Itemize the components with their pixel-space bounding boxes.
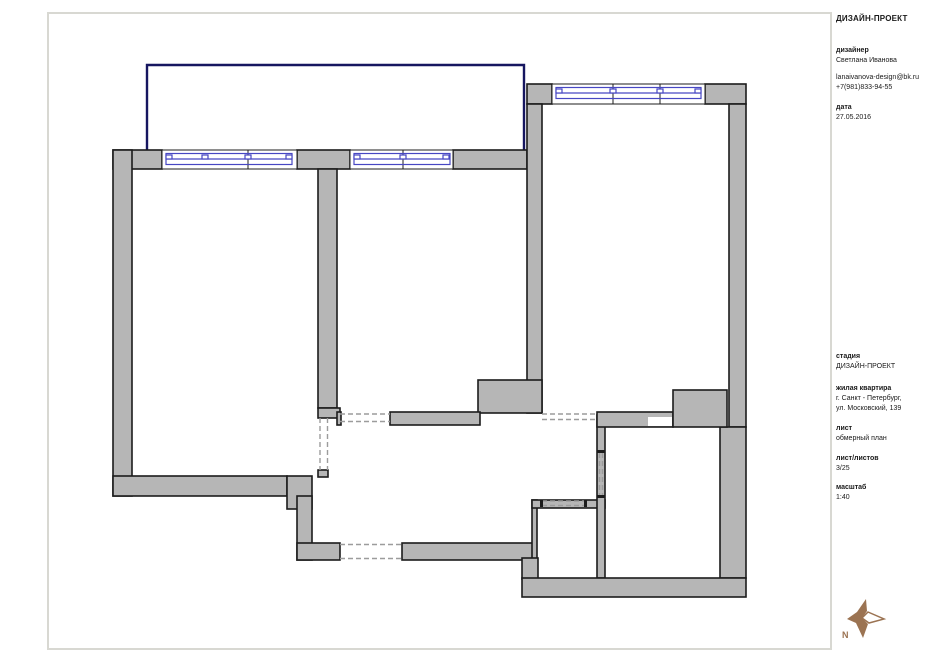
window-symbol	[202, 155, 208, 159]
compass: N	[833, 590, 893, 655]
wall-segment	[705, 84, 746, 104]
door-jambs	[540, 450, 605, 507]
scale-value: 1:40	[836, 494, 936, 503]
designer-name: Светлана Иванова	[836, 57, 936, 66]
window-symbol	[443, 155, 449, 159]
wall-segment	[113, 476, 287, 496]
door-jamb-tick	[540, 500, 543, 507]
door-openings	[320, 414, 603, 559]
wall-opening-gap	[648, 417, 672, 426]
wall-segment	[113, 150, 132, 496]
wall-segment	[522, 578, 746, 597]
wall-segment	[453, 150, 527, 169]
designer-label: дизайнер	[836, 47, 936, 56]
window-symbol	[286, 155, 292, 159]
door-opening-dashed	[340, 414, 390, 422]
sheet-name-value: обмерный план	[836, 435, 936, 444]
sheet-count-label: лист/листов	[836, 455, 936, 464]
wall-segment	[297, 150, 350, 169]
north-arrow-icon: N	[833, 590, 893, 650]
window-symbol	[166, 155, 172, 159]
object-label: жилая квартира	[836, 385, 936, 394]
window-symbol	[556, 89, 562, 93]
window-bands	[162, 84, 705, 169]
compass-north-label: N	[842, 630, 849, 640]
wall-segment	[402, 543, 533, 560]
door-jamb-tick	[597, 495, 605, 498]
stage-value: ДИЗАЙН-ПРОЕКТ	[836, 363, 936, 372]
balcony-outline	[147, 65, 524, 150]
window-symbol	[400, 155, 406, 159]
door-jamb-tick	[584, 500, 587, 507]
object-city: г. Санкт - Петербург,	[836, 395, 936, 404]
scale-label: масштаб	[836, 484, 936, 493]
window-symbol	[657, 89, 663, 93]
door-opening-dashed	[320, 418, 328, 470]
window-symbol	[354, 155, 360, 159]
object-street: ул. Московский, 139	[836, 405, 936, 414]
date-value: 27.05.2016	[836, 114, 936, 123]
floor-plan-drawing	[0, 0, 940, 665]
wall-segment	[527, 104, 542, 413]
wall-segment	[720, 427, 746, 578]
door-jamb-tick	[597, 450, 605, 453]
window-symbol	[610, 89, 616, 93]
wall-segment	[522, 558, 538, 579]
designer-phone: +7(981)833-94-55	[836, 84, 936, 93]
sheet-name-label: лист	[836, 425, 936, 434]
wall-segment	[729, 104, 746, 427]
project-title: ДИЗАЙН-ПРОЕКТ	[836, 15, 936, 24]
wall-segment	[318, 169, 337, 408]
window-symbol	[695, 89, 701, 93]
windows	[166, 88, 701, 165]
wall-segment	[673, 390, 727, 427]
stage-label: стадия	[836, 353, 936, 362]
door-opening-dashed	[340, 545, 402, 559]
date-label: дата	[836, 104, 936, 113]
wall-segment	[527, 84, 552, 104]
sheet-count-value: 3/25	[836, 465, 936, 474]
designer-email: lanaivanova-design@bk.ru	[836, 74, 936, 83]
wall-segment	[297, 543, 340, 560]
door-opening-dashed	[542, 414, 597, 420]
drawing-sheet: ДИЗАЙН-ПРОЕКТ дизайнер Светлана Иванова …	[0, 0, 940, 665]
wall-segment	[390, 412, 480, 425]
window-symbol	[245, 155, 251, 159]
wall-segment	[318, 470, 328, 477]
wall-segment	[478, 380, 542, 413]
